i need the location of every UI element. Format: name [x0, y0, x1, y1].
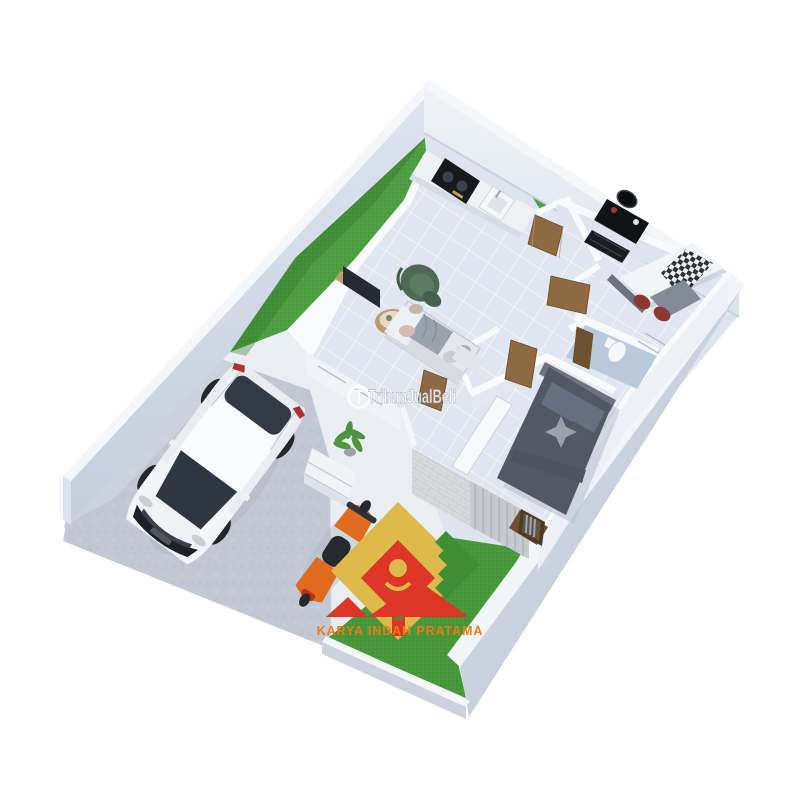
- svg-text:KARYA INDAH PRATAMA: KARYA INDAH PRATAMA: [317, 624, 484, 638]
- svg-text:TribunJualBeli: TribunJualBeli: [368, 387, 456, 408]
